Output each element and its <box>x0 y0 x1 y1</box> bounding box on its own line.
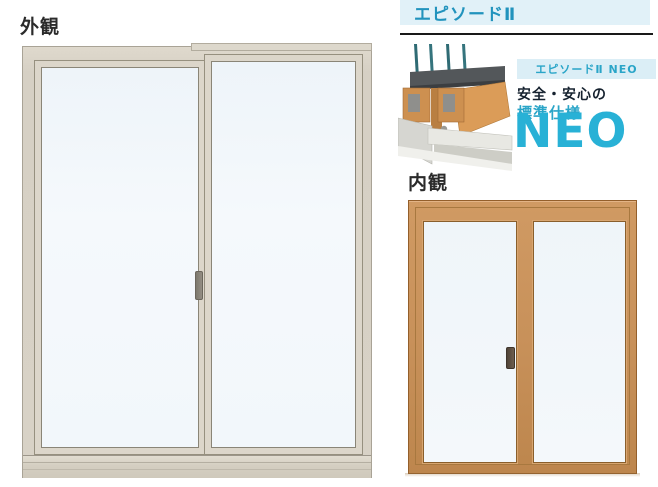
wood-sash-profile <box>403 88 430 122</box>
sill-groove <box>23 469 371 470</box>
window-handle-icon <box>195 271 203 300</box>
wood-sash-profile <box>438 88 464 122</box>
sill-groove <box>23 462 371 463</box>
neo-series-badge: エピソードⅡ NEO <box>517 59 656 79</box>
window-handle-icon <box>506 347 515 369</box>
sill-profile <box>398 118 512 171</box>
product-title-band: エピソードⅡ <box>400 0 650 25</box>
exterior-left-glass <box>41 67 199 448</box>
window-cross-section-illustration <box>398 44 514 177</box>
interior-right-glass <box>533 221 626 463</box>
interior-window-illustration <box>408 200 637 474</box>
exterior-window-illustration <box>22 46 372 478</box>
product-title: エピソードⅡ <box>400 0 516 25</box>
neo-logo-text: NEO <box>513 106 627 158</box>
interior-window-shadow <box>405 473 640 477</box>
feature-caption-line1: 安全・安心の <box>517 84 607 104</box>
header-divider <box>400 33 653 35</box>
exterior-left-sash <box>34 60 206 455</box>
exterior-right-sash <box>204 54 363 455</box>
exterior-window-sill <box>23 455 371 478</box>
exterior-window-top-step <box>191 43 372 51</box>
interior-view-label: 内観 <box>408 168 448 195</box>
exterior-view-label: 外観 <box>20 12 60 39</box>
interior-left-glass <box>423 221 517 463</box>
exterior-right-glass <box>211 61 356 448</box>
